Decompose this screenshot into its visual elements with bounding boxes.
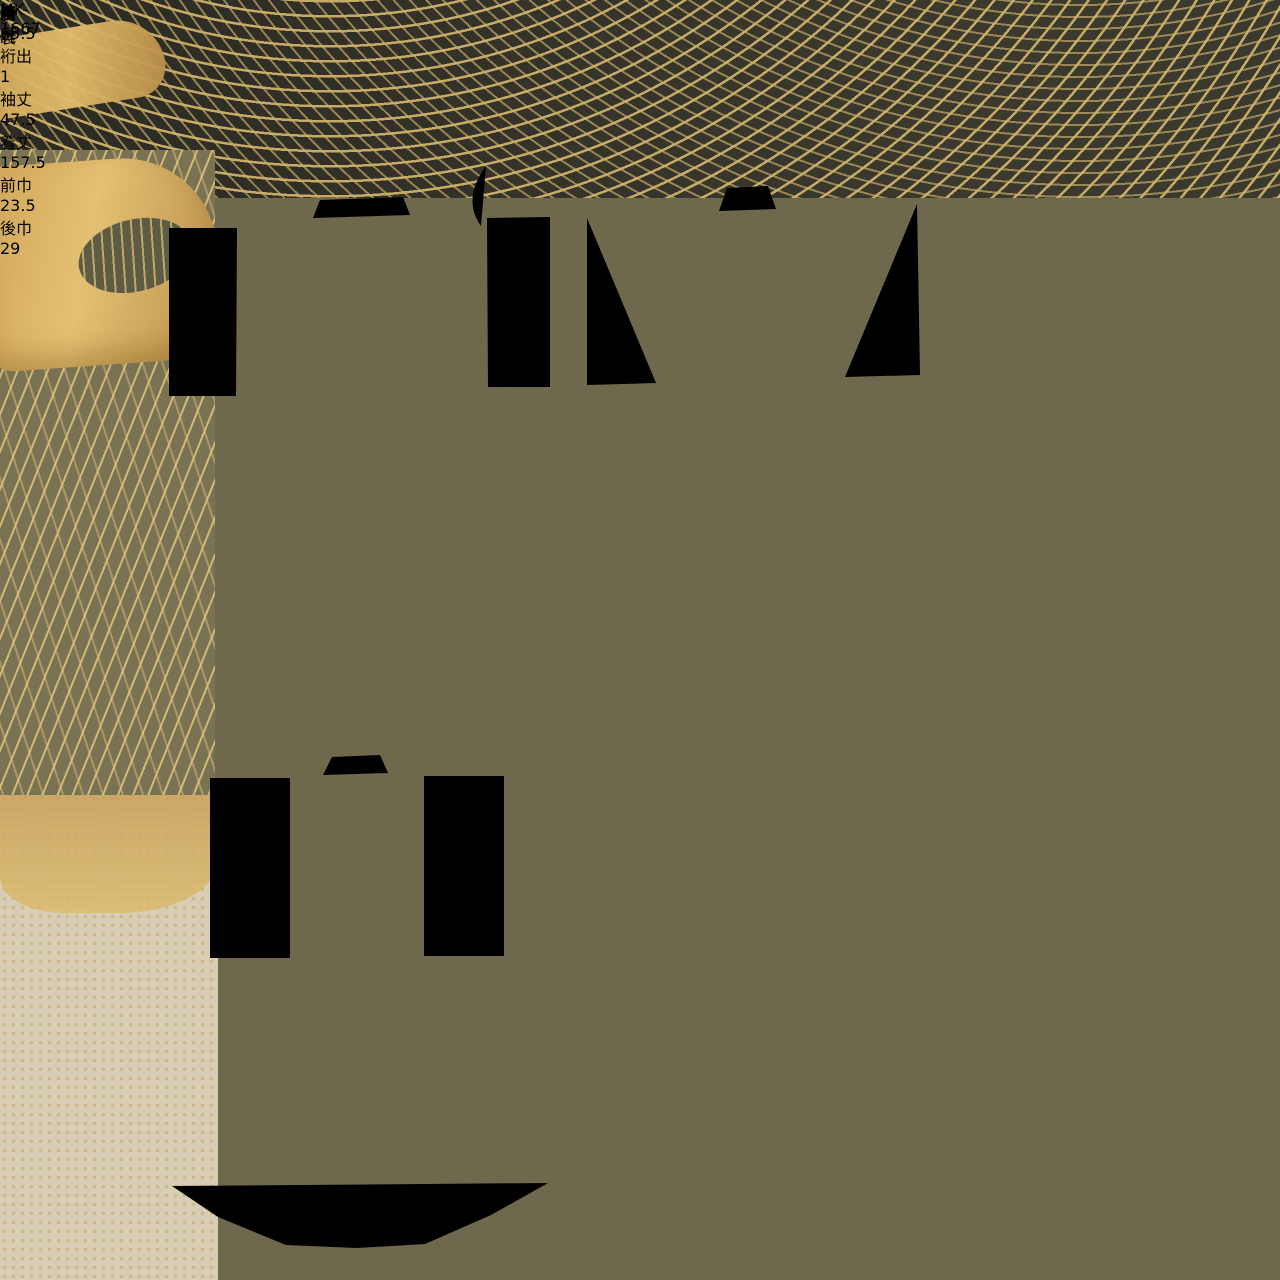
- kimono-lining-diagram: [152, 746, 572, 1276]
- measurement-value: 157.5: [0, 153, 46, 172]
- measurement-value: 1: [0, 67, 10, 86]
- measurement-label: 裄出: [0, 47, 32, 66]
- photo-stage: MK-1667 表 裏 胴裏: [0, 0, 1280, 1280]
- measurement-row: 袖丈 47.5: [0, 86, 46, 129]
- measurement-value: 29: [0, 239, 20, 258]
- measurement-row: 前巾 23.5: [0, 172, 46, 215]
- measurement-row: 裄出 1: [0, 43, 46, 86]
- measurement-row: 裄 65.5: [0, 0, 46, 43]
- kimono-back-diagram: [572, 176, 932, 696]
- measurement-row: 着丈 157.5: [0, 129, 46, 172]
- measurement-label: 袖丈: [0, 90, 32, 109]
- stain-arrow: [464, 164, 510, 244]
- measurement-label: 後巾: [0, 219, 32, 238]
- measurement-row: 後巾 29: [0, 215, 46, 258]
- measurement-value: 47.5: [0, 110, 36, 129]
- measurement-list: 裄 65.5 裄出 1 袖丈 47.5 着丈 157.5 前巾 23.5: [0, 0, 46, 258]
- kimono-front-diagram: [152, 176, 572, 696]
- measurement-label: 前巾: [0, 176, 32, 195]
- measurement-label: 着丈: [0, 133, 32, 152]
- measurement-label: 裄: [0, 4, 16, 23]
- measurement-value: 65.5: [0, 24, 36, 43]
- measurement-value: 23.5: [0, 196, 36, 215]
